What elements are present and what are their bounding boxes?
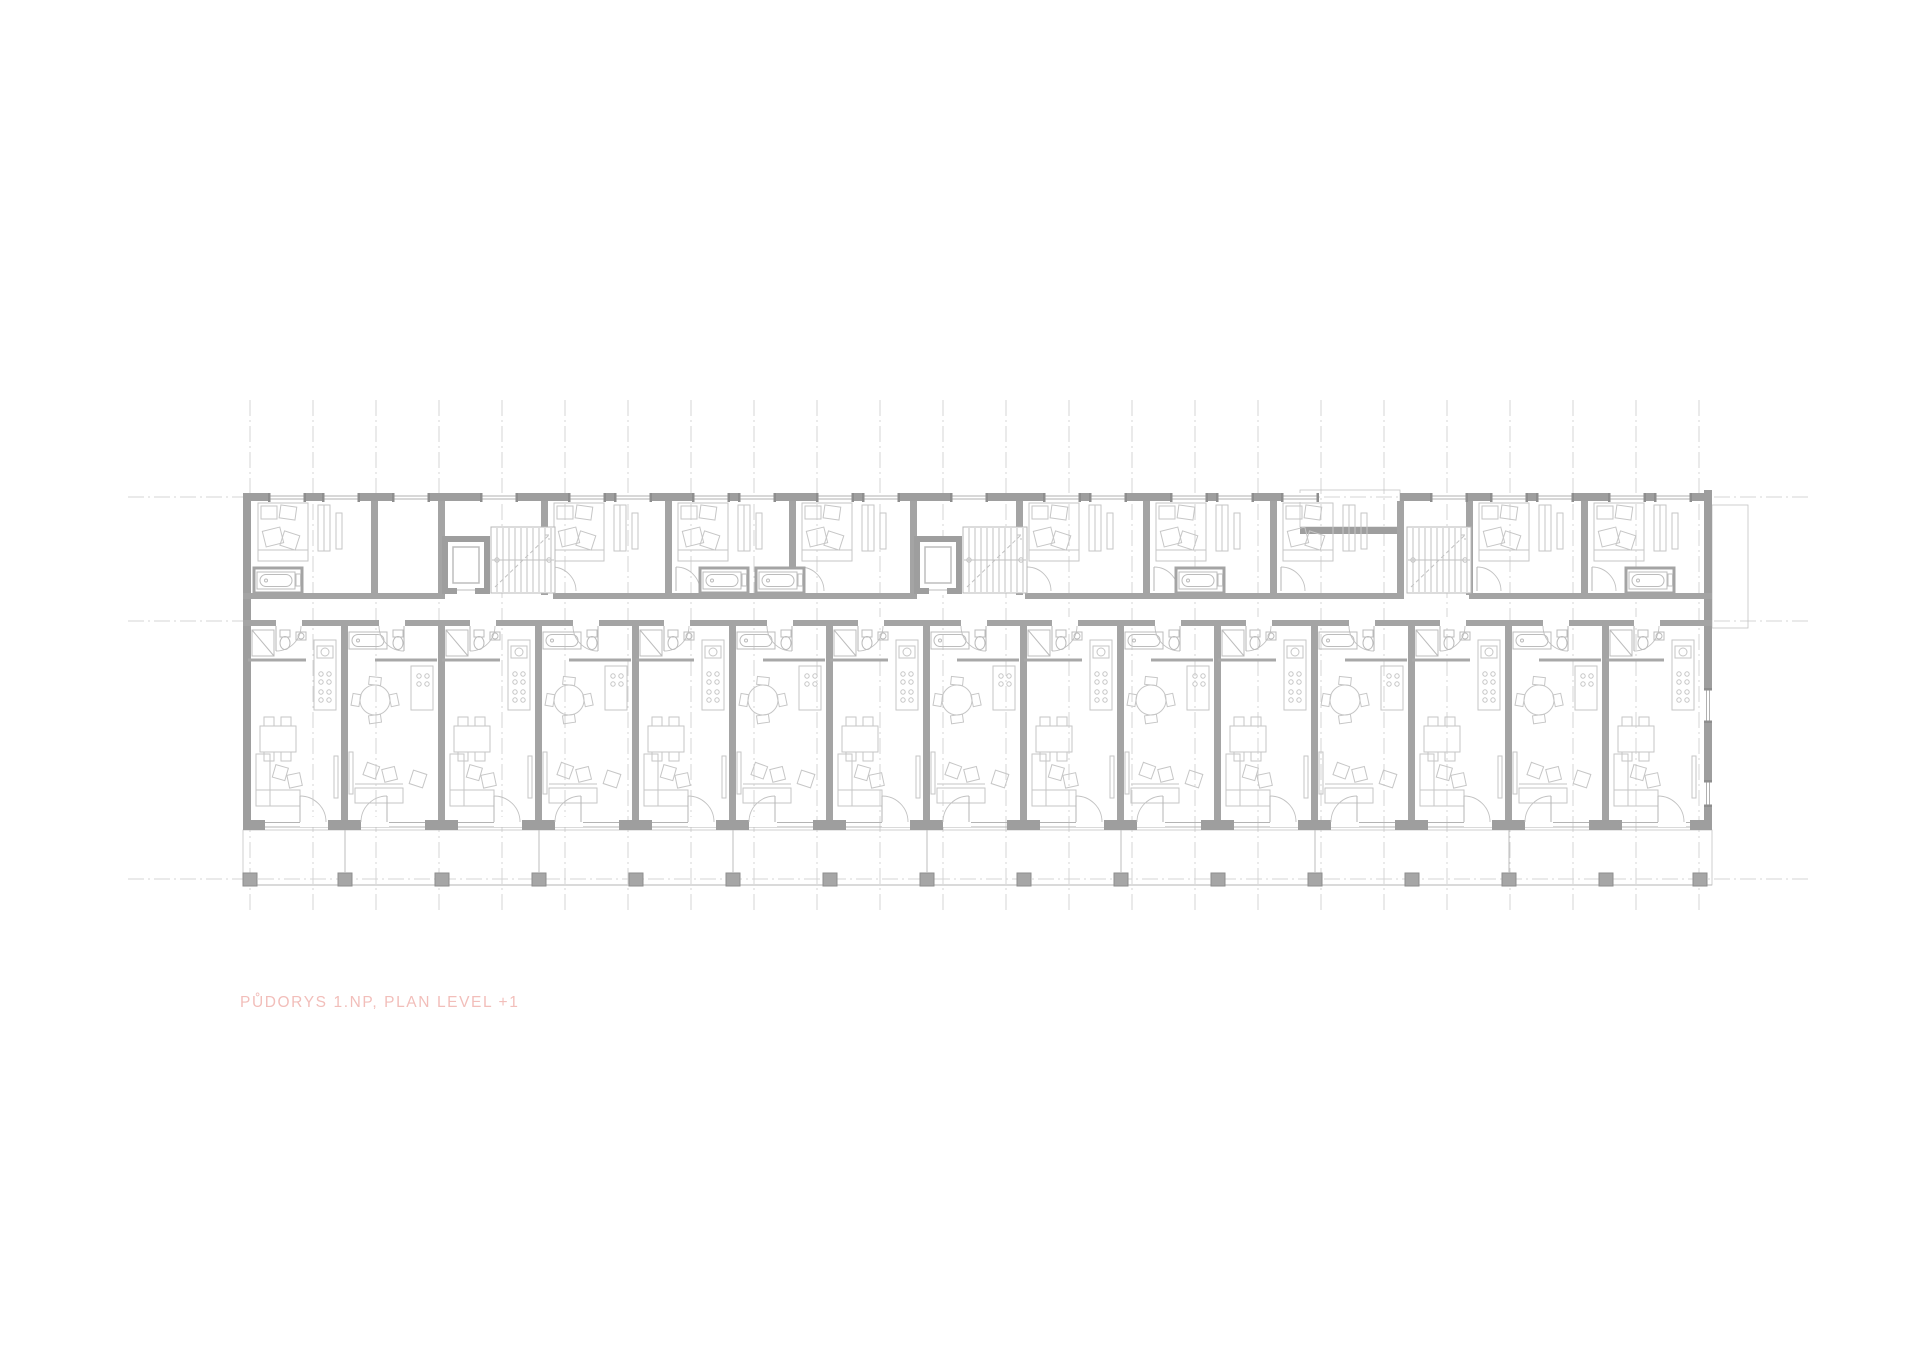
balcony-right [1712,505,1748,628]
module-b-instance [1125,617,1213,827]
column-instance [1017,873,1031,886]
tubroom-instance [254,568,302,593]
module-b-instance [1513,617,1601,827]
tubroom-instance [1626,568,1674,593]
column-instance [1114,873,1128,886]
module-b-instance [1319,617,1407,827]
bedroom-instance [800,503,886,591]
column-instance [243,873,257,886]
column-instance [823,873,837,886]
window-instance [614,493,652,502]
module-a-instance [248,617,338,827]
column-instance [1502,873,1516,886]
bedroom-instance [1027,503,1113,591]
window-instance [480,493,518,502]
window-instance [1216,493,1254,502]
window-instance [1608,493,1646,502]
column-instance [435,873,449,886]
plan-title-label: PŮDORYS 1.NP, PLAN LEVEL +1 [240,993,519,1011]
terrace-columns-layer [243,830,1707,886]
right-wall [1704,490,1712,830]
column-instance [338,873,352,886]
grid-axes-layer [128,400,1808,912]
column-instance [726,873,740,886]
bedroom-instance [1281,503,1367,591]
core-instance [445,527,555,595]
column-instance [629,873,643,886]
module-a-instance [1412,617,1502,827]
module-a-instance [1606,617,1696,827]
window-instance [816,493,854,502]
column-instance [1405,873,1419,886]
window-instance [1654,493,1692,502]
column-instance [1693,873,1707,886]
window-instance [322,493,360,502]
stair-instance [1407,527,1471,593]
module-a-instance [830,617,920,827]
window-instance [1170,493,1208,502]
window-instance [1490,493,1528,502]
window-instance [738,493,776,502]
lower-partitions [341,626,1609,822]
window-instance [950,493,988,502]
window-instance [392,493,430,502]
column-instance [1211,873,1225,886]
module-a-instance [1218,617,1308,827]
floor-plan-svg: PŮDORYS 1.NP, PLAN LEVEL +1 [0,0,1920,1357]
bedroom-instance [1477,503,1563,591]
column-instance [532,873,546,886]
window-instance [568,493,606,502]
tubroom-instance [1176,568,1224,593]
column-instance [920,873,934,886]
core-instance [917,527,1027,595]
window-instance [1043,493,1081,502]
window-instance [1430,493,1468,502]
drawing-sheet: PŮDORYS 1.NP, PLAN LEVEL +1 [0,0,1920,1357]
column-instance [1599,873,1613,886]
window-instance [862,493,900,502]
terrace-hatch [243,830,1712,885]
terrace-strip [243,830,1712,885]
module-b-instance [737,617,825,827]
window-instance [1089,493,1127,502]
window-instance [268,493,306,502]
module-a-instance [636,617,726,827]
module-b-instance [349,617,437,827]
window-instance [1281,493,1319,502]
window-instance [692,493,730,502]
module-a-instance [442,617,532,827]
column-instance [1308,873,1322,886]
tubroom-instance [700,568,748,593]
module-b-instance [543,617,631,827]
window-instance [1536,493,1574,502]
tubroom-instance [756,568,804,593]
